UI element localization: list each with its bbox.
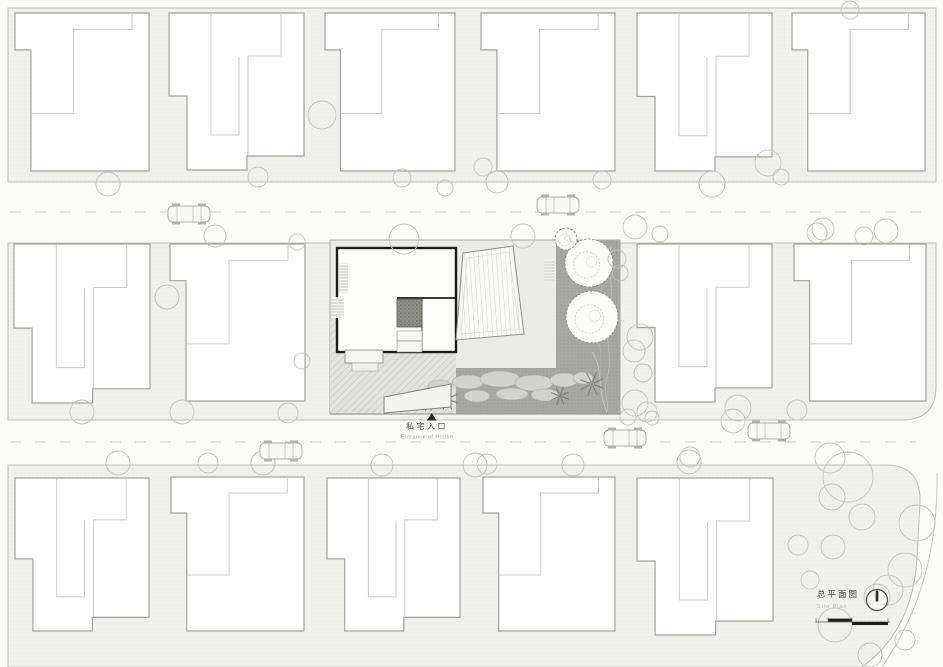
north-arrow-icon [867,590,888,611]
stairs [331,297,344,318]
entrance-label-en: Entrance of House [401,435,453,441]
house-footprint [171,477,304,631]
hedge [464,390,490,402]
tree [812,218,834,240]
entrance-label-cn: 私宅入口 [406,421,448,431]
annex-step [352,363,378,371]
main-house [337,248,456,352]
site-plan-drawing: 私宅入口 Entrance of House 总平面图 Site Plan [0,0,943,667]
car [748,422,790,441]
tree [895,630,915,650]
house-footprint [15,13,149,171]
hedge [496,388,528,400]
house-footprint [327,478,460,631]
tree [874,219,898,243]
house-footprint [170,244,305,401]
tree [652,226,668,242]
central-plot [330,228,620,421]
house-footprint [794,244,926,401]
site-plan-sheet: 私宅入口 Entrance of House 总平面图 Site Plan [0,0,943,667]
car [168,205,210,224]
house-footprint [637,13,772,171]
hedge [573,372,593,384]
house-footprint [14,244,150,403]
house-footprint [792,13,925,171]
car [260,442,302,461]
garden-tree [566,291,618,343]
hedge [531,389,559,401]
small-room [397,331,422,341]
tree [807,223,827,243]
house-footprint [637,244,772,402]
tree [623,215,647,239]
annex-terrace [345,350,383,363]
hedge [480,371,520,387]
main-house-walls [337,248,456,352]
hedge [452,375,484,389]
garden-tree [555,228,577,250]
car [604,429,646,448]
house-footprint [15,478,149,631]
stairs [544,259,554,281]
hedge [515,375,553,391]
sloped-roof [456,246,524,340]
house-footprint [481,13,615,171]
car [537,196,579,215]
entrance-annotation: 私宅入口 Entrance of House [401,421,453,441]
small-room [397,341,422,352]
inner-courtyard [397,299,422,327]
tree [855,227,873,245]
house-footprint [637,478,773,635]
stairs [339,263,348,293]
house-footprint [169,13,304,170]
house-footprint [483,477,615,631]
drawing-title-en: Site Plan [817,604,847,610]
drawing-title-cn: 总平面图 [817,589,859,599]
house-footprint [325,13,455,171]
